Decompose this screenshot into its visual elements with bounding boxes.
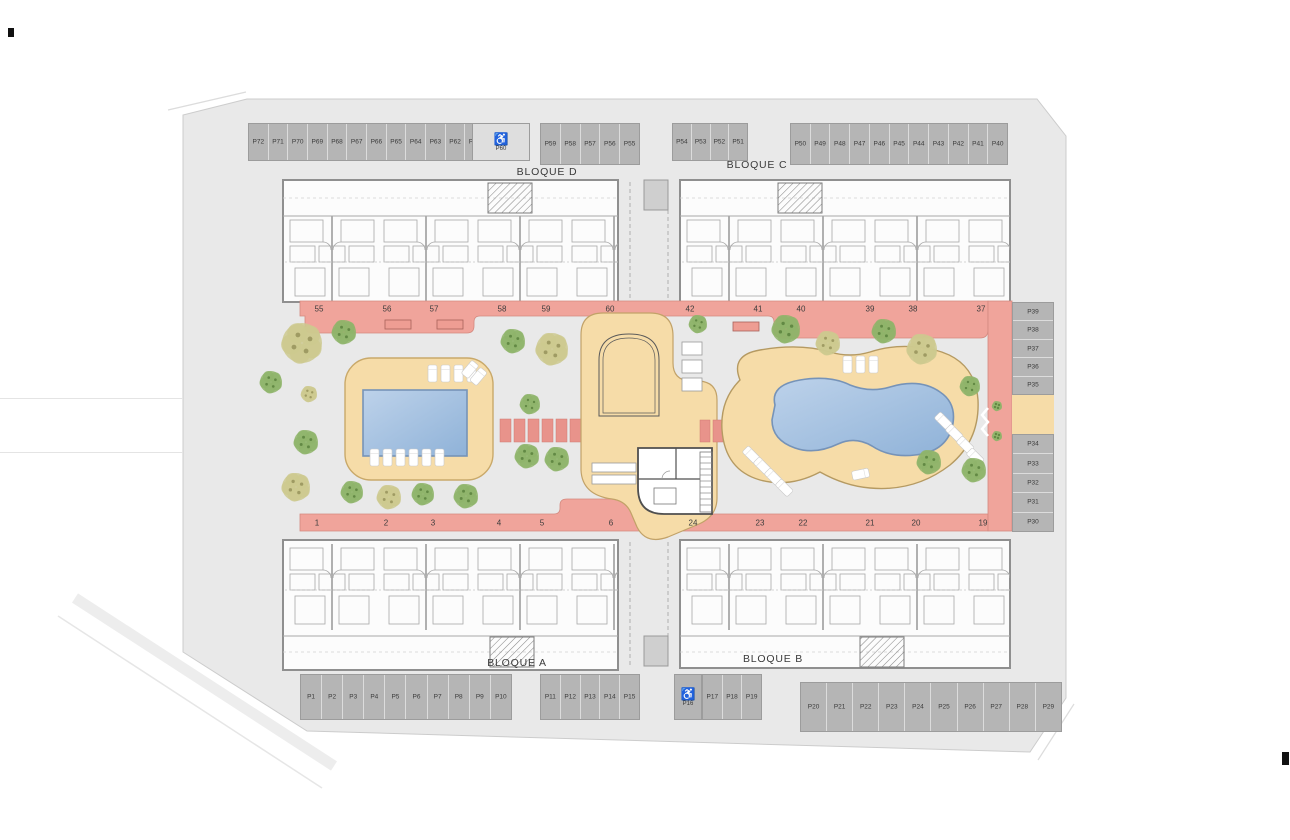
parking-stall: P56 — [600, 124, 620, 164]
parking-group-top-left: P72P71P70P69P68P67P66P65P64P63P62P61 — [248, 123, 485, 161]
parking-stall-label: P67 — [351, 139, 363, 146]
parking-stall: P6 — [406, 675, 427, 719]
parking-stall: P19 — [742, 675, 761, 719]
parking-stall: P21 — [827, 683, 853, 731]
parking-stall: ♿P60 — [473, 124, 529, 160]
parking-stall: P51 — [729, 124, 747, 160]
unit-number: 20 — [912, 519, 921, 528]
parking-stall: P42 — [949, 124, 969, 164]
parking-group-top-middle: P59P58P57P56P55 — [540, 123, 640, 165]
unit-number: 59 — [542, 305, 551, 314]
unit-number: 41 — [754, 305, 763, 314]
parking-stall: P37 — [1013, 340, 1053, 358]
unit-number: 6 — [609, 519, 613, 528]
parking-stall-label: P64 — [410, 139, 422, 146]
parking-stall-label: P34 — [1027, 441, 1039, 448]
parking-stall: P13 — [581, 675, 601, 719]
unit-number: 21 — [866, 519, 875, 528]
parking-stall: P9 — [470, 675, 491, 719]
parking-stall: P53 — [692, 124, 711, 160]
parking-stall-label: P8 — [455, 694, 463, 701]
parking-stall: P31 — [1013, 493, 1053, 512]
parking-stall: P54 — [673, 124, 692, 160]
parking-stall-label: P23 — [886, 704, 898, 711]
unit-number: 22 — [799, 519, 808, 528]
parking-stall: P32 — [1013, 474, 1053, 493]
parking-stall-label: P29 — [1043, 704, 1055, 711]
parking-stall-label: P54 — [676, 139, 688, 146]
unit-number: 55 — [315, 305, 324, 314]
parking-stall-label: P49 — [814, 141, 826, 148]
wheelchair-icon: ♿ — [494, 133, 509, 145]
parking-stall: P8 — [449, 675, 470, 719]
parking-stall: P62 — [446, 124, 466, 160]
print-mark — [1282, 752, 1289, 765]
unit-number: 37 — [977, 305, 986, 314]
parking-stall-label: P3 — [349, 694, 357, 701]
parking-stall-label: P30 — [1027, 518, 1039, 525]
parking-stall: P25 — [931, 683, 957, 731]
parking-stall-label: P53 — [695, 139, 707, 146]
parking-group-right-upper: P39P38P37P36P35 — [1012, 302, 1054, 395]
parking-stall-label: P41 — [972, 141, 984, 148]
parking-stall: P58 — [561, 124, 581, 164]
parking-stall-label: P40 — [992, 141, 1004, 148]
parking-stall-label: P1 — [307, 694, 315, 701]
parking-stall-label: P31 — [1027, 499, 1039, 506]
parking-stall: P72 — [249, 124, 269, 160]
parking-group-bottom-accessible: ♿P16 — [674, 674, 702, 720]
parking-stall-label: P44 — [913, 141, 925, 148]
parking-stall-label: P22 — [860, 704, 872, 711]
parking-stall: P57 — [581, 124, 601, 164]
parking-stall-label: P39 — [1027, 308, 1039, 315]
parking-stall-label: P36 — [1027, 363, 1039, 370]
parking-stall-label: P24 — [912, 704, 924, 711]
parking-group-top-right-a: P54P53P52P51 — [672, 123, 748, 161]
survey-line — [0, 398, 183, 399]
parking-stall-label: P32 — [1027, 480, 1039, 487]
parking-stall-label: P52 — [714, 139, 726, 146]
parking-stall: P20 — [801, 683, 827, 731]
parking-stall: P36 — [1013, 358, 1053, 376]
parking-stall: P23 — [879, 683, 905, 731]
parking-stall: P49 — [811, 124, 831, 164]
parking-stall-label: P17 — [707, 694, 719, 701]
parking-stall-label: P62 — [449, 139, 461, 146]
parking-stall: P71 — [269, 124, 289, 160]
parking-stall: P55 — [620, 124, 639, 164]
unit-number: 57 — [430, 305, 439, 314]
parking-stall-label: P12 — [564, 694, 576, 701]
parking-stall-label: P27 — [990, 704, 1002, 711]
unit-number: 60 — [606, 305, 615, 314]
parking-stall-label: P58 — [564, 141, 576, 148]
parking-group-top-right-b: P50P49P48P47P46P45P44P43P42P41P40 — [790, 123, 1008, 165]
parking-stall-label: P26 — [964, 704, 976, 711]
parking-stall-label: P48 — [834, 141, 846, 148]
parking-stall-label: P57 — [584, 141, 596, 148]
unit-number: 2 — [384, 519, 388, 528]
parking-stall-label: P16 — [683, 701, 694, 707]
parking-stall-label: P15 — [624, 694, 636, 701]
parking-stall-label: P56 — [604, 141, 616, 148]
parking-stall: P69 — [308, 124, 328, 160]
parking-stall-label: P33 — [1027, 460, 1039, 467]
parking-stall-label: P42 — [952, 141, 964, 148]
parking-stall-label: P35 — [1027, 382, 1039, 389]
parking-stall-label: P18 — [726, 694, 738, 701]
parking-stall-label: P14 — [604, 694, 616, 701]
unit-number: 4 — [497, 519, 501, 528]
block-label: BLOQUE A — [487, 657, 547, 669]
parking-group-bottom-left: P1P2P3P4P5P6P7P8P9P10 — [300, 674, 512, 720]
parking-stall: P52 — [711, 124, 730, 160]
parking-stall-label: P25 — [938, 704, 950, 711]
parking-stall-label: P66 — [371, 139, 383, 146]
parking-stall: P18 — [723, 675, 743, 719]
parking-stall-label: P7 — [434, 694, 442, 701]
parking-stall: P29 — [1036, 683, 1061, 731]
parking-stall-label: P72 — [253, 139, 265, 146]
unit-number: 58 — [498, 305, 507, 314]
unit-number: 38 — [909, 305, 918, 314]
parking-stall: P7 — [428, 675, 449, 719]
parking-stall-label: P28 — [1017, 704, 1029, 711]
parking-stall: P39 — [1013, 303, 1053, 321]
parking-group-right-lower: P34P33P32P31P30 — [1012, 434, 1054, 532]
parking-stall: P14 — [600, 675, 620, 719]
print-mark — [8, 28, 14, 37]
parking-stall-label: P46 — [874, 141, 886, 148]
parking-stall: P12 — [561, 675, 581, 719]
parking-stall-label: P10 — [495, 694, 507, 701]
parking-stall-label: P4 — [370, 694, 378, 701]
parking-stall-label: P11 — [545, 694, 556, 701]
parking-stall: P48 — [830, 124, 850, 164]
parking-stall: P65 — [387, 124, 407, 160]
parking-stall-label: P43 — [933, 141, 945, 148]
parking-stall: P24 — [905, 683, 931, 731]
parking-stall-label: P9 — [476, 694, 484, 701]
parking-stall-label: P21 — [834, 704, 846, 711]
parking-stall: P3 — [343, 675, 364, 719]
parking-group-bottom-right: P20P21P22P23P24P25P26P27P28P29 — [800, 682, 1062, 732]
annotation-layer: P72P71P70P69P68P67P66P65P64P63P62P61♿P60… — [0, 0, 1290, 840]
unit-number: 5 — [540, 519, 544, 528]
parking-group-bottom-middle-b: P17P18P19 — [702, 674, 762, 720]
parking-stall: P1 — [301, 675, 322, 719]
parking-stall: P28 — [1010, 683, 1036, 731]
unit-number: 1 — [315, 519, 319, 528]
parking-stall: P10 — [491, 675, 511, 719]
parking-stall-label: P55 — [624, 141, 636, 148]
parking-stall: P22 — [853, 683, 879, 731]
parking-stall: P43 — [929, 124, 949, 164]
block-label: BLOQUE D — [517, 166, 578, 178]
parking-stall-label: P47 — [854, 141, 866, 148]
site-plan-canvas: P72P71P70P69P68P67P66P65P64P63P62P61♿P60… — [0, 0, 1290, 840]
parking-stall: P34 — [1013, 435, 1053, 454]
parking-stall: P27 — [984, 683, 1010, 731]
unit-number: 23 — [756, 519, 765, 528]
parking-stall-label: P69 — [312, 139, 324, 146]
parking-stall-label: P2 — [328, 694, 336, 701]
parking-stall: P2 — [322, 675, 343, 719]
unit-number: 56 — [383, 305, 392, 314]
unit-number: 42 — [686, 305, 695, 314]
parking-stall-label: P38 — [1027, 327, 1039, 334]
unit-number: 40 — [797, 305, 806, 314]
parking-stall-label: P68 — [331, 139, 343, 146]
parking-stall: P26 — [958, 683, 984, 731]
parking-stall-label: P5 — [391, 694, 399, 701]
parking-stall-label: P20 — [808, 704, 820, 711]
parking-stall-label: P60 — [496, 146, 507, 152]
parking-stall: P44 — [909, 124, 929, 164]
parking-stall-label: P45 — [893, 141, 905, 148]
block-label: BLOQUE B — [743, 653, 803, 665]
parking-stall: P35 — [1013, 377, 1053, 394]
parking-stall: P45 — [890, 124, 910, 164]
parking-stall-label: P71 — [272, 139, 284, 146]
parking-stall-label: P51 — [732, 139, 744, 146]
parking-stall-label: P59 — [545, 141, 557, 148]
parking-stall: P59 — [541, 124, 561, 164]
parking-stall: P67 — [347, 124, 367, 160]
parking-stall-label: P6 — [413, 694, 421, 701]
parking-stall: P38 — [1013, 321, 1053, 339]
parking-stall: P11 — [541, 675, 561, 719]
parking-group-top-accessible: ♿P60 — [472, 123, 530, 161]
parking-stall: P63 — [426, 124, 446, 160]
parking-stall-label: P19 — [746, 694, 758, 701]
unit-number: 24 — [689, 519, 698, 528]
unit-number: 39 — [866, 305, 875, 314]
parking-stall: ♿P16 — [675, 675, 701, 719]
parking-stall: P64 — [406, 124, 426, 160]
unit-number: 3 — [431, 519, 435, 528]
parking-stall: P68 — [328, 124, 348, 160]
parking-stall: P41 — [969, 124, 989, 164]
unit-number: 19 — [979, 519, 988, 528]
parking-stall: P17 — [703, 675, 723, 719]
wheelchair-icon: ♿ — [681, 688, 696, 700]
parking-stall-label: P50 — [795, 141, 807, 148]
parking-stall: P46 — [870, 124, 890, 164]
parking-stall-label: P13 — [584, 694, 596, 701]
parking-stall-label: P65 — [390, 139, 402, 146]
parking-stall: P5 — [385, 675, 406, 719]
parking-stall: P47 — [850, 124, 870, 164]
parking-stall: P70 — [288, 124, 308, 160]
parking-stall-label: P63 — [430, 139, 442, 146]
parking-stall-label: P37 — [1027, 345, 1039, 352]
parking-stall: P30 — [1013, 513, 1053, 531]
parking-stall-label: P70 — [292, 139, 304, 146]
parking-stall: P4 — [364, 675, 385, 719]
block-label: BLOQUE C — [727, 159, 788, 171]
survey-line — [0, 452, 183, 453]
parking-stall: P15 — [620, 675, 639, 719]
parking-stall: P33 — [1013, 454, 1053, 473]
parking-group-bottom-middle-a: P11P12P13P14P15 — [540, 674, 640, 720]
parking-stall: P50 — [791, 124, 811, 164]
parking-stall: P66 — [367, 124, 387, 160]
parking-stall: P40 — [988, 124, 1007, 164]
